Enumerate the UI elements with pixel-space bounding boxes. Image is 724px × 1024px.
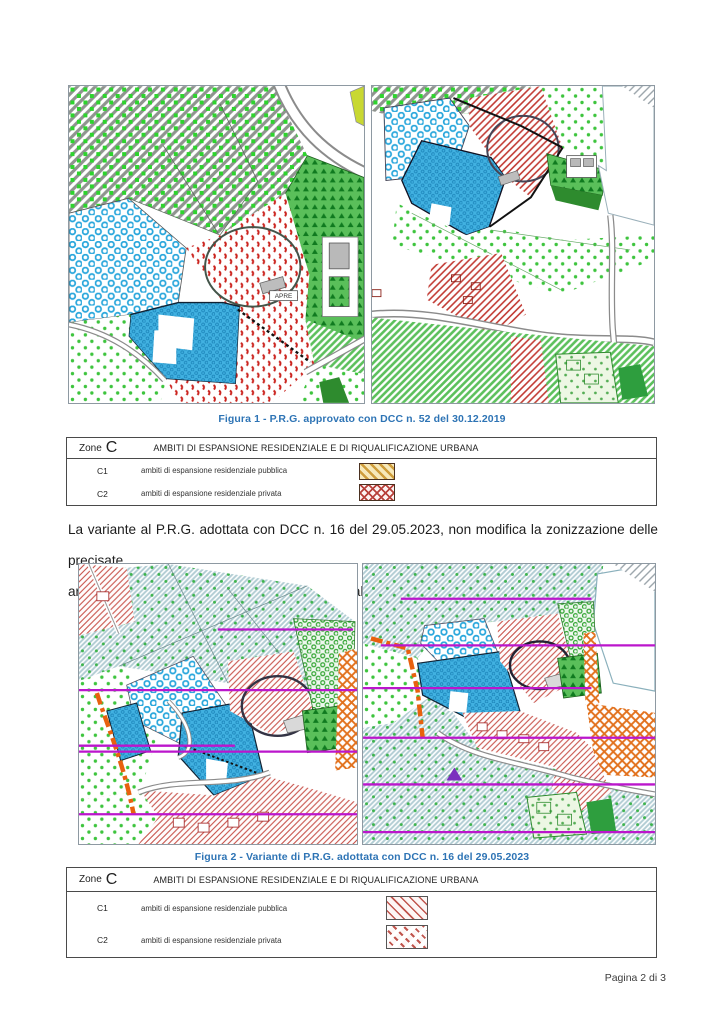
zone-label: ambiti di espansione residenziale privat…	[141, 936, 281, 945]
prg-2019-map-detail: APRE	[69, 86, 364, 403]
figure2-map-right	[362, 563, 656, 845]
figure1-map-left: APRE	[68, 85, 365, 404]
legend2-header-row: Zone C AMBITI DI ESPANSIONE RESIDENZIALE…	[67, 868, 656, 892]
prg-variant-map-detail	[79, 564, 357, 844]
legend1-header-row: Zone C AMBITI DI ESPANSIONE RESIDENZIALE…	[67, 438, 656, 459]
zone-label: ambiti di espansione residenziale pubbli…	[141, 904, 287, 913]
zone-code: C1	[97, 466, 119, 476]
page-number: Pagina 2 di 3	[605, 972, 666, 984]
zone-word: Zone	[79, 443, 102, 454]
zone-letter: C	[106, 871, 118, 889]
figure1-maps: APRE	[68, 85, 655, 404]
farm-buildings	[567, 156, 597, 178]
figure2-map-left	[78, 563, 358, 845]
map-area-label: APRE	[275, 293, 293, 300]
legend2-swatch-c2	[386, 925, 428, 949]
legend2-row-c1: C1 ambiti di espansione residenziale pub…	[67, 892, 656, 924]
legend2-title: AMBITI DI ESPANSIONE RESIDENZIALE E DI R…	[153, 875, 478, 885]
zone-code: C2	[97, 489, 119, 499]
figure1-caption: Figura 1 - P.R.G. approvato con DCC n. 5…	[0, 413, 724, 425]
prg-2019-map-wide	[372, 86, 654, 403]
legend-table-1: Zone C AMBITI DI ESPANSIONE RESIDENZIALE…	[66, 437, 657, 506]
zone-code: C2	[97, 935, 119, 945]
figure2-maps	[78, 563, 656, 845]
legend1-swatch-c1	[359, 463, 395, 480]
zone-label: ambiti di espansione residenziale pubbli…	[141, 466, 287, 475]
legend2-swatch-c1	[386, 896, 428, 920]
figure1-map-right	[371, 85, 655, 404]
prg-variant-map-wide	[363, 564, 655, 844]
zone-letter: C	[106, 439, 118, 457]
figure2-caption: Figura 2 - Variante di P.R.G. adottata c…	[0, 851, 724, 863]
document-page: APRE	[0, 0, 724, 1024]
legend1-swatch-c2	[359, 484, 395, 501]
legend1-title: AMBITI DI ESPANSIONE RESIDENZIALE E DI R…	[153, 443, 478, 453]
legend2-row-c2: C2 ambiti di espansione residenziale pri…	[67, 924, 656, 956]
zone-label: ambiti di espansione residenziale privat…	[141, 489, 281, 498]
legend-table-2: Zone C AMBITI DI ESPANSIONE RESIDENZIALE…	[66, 867, 657, 958]
zone-code: C1	[97, 903, 119, 913]
zone-word: Zone	[79, 874, 102, 885]
